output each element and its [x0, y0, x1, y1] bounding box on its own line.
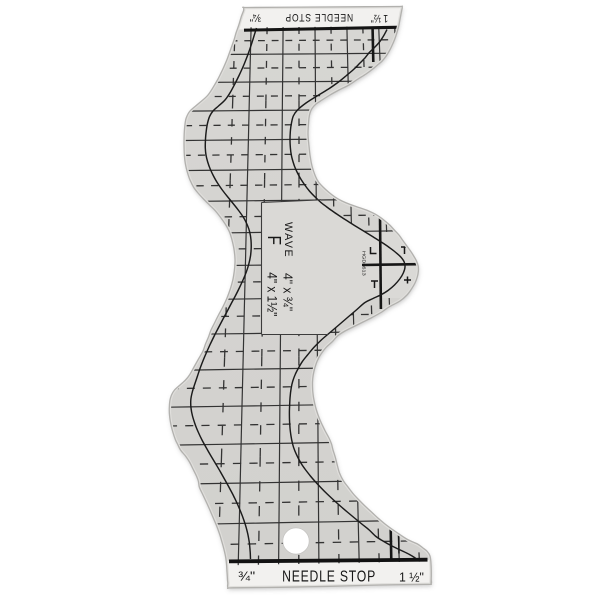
svg-text:NEEDLE STOP: NEEDLE STOP: [282, 568, 376, 585]
svg-text:¾": ¾": [250, 11, 262, 23]
svg-text:1 ½": 1 ½": [371, 12, 389, 24]
svg-text:F: F: [264, 236, 285, 246]
svg-text:4" x 1½": 4" x 1½": [265, 272, 281, 316]
svg-text:1 ½": 1 ½": [399, 569, 424, 584]
svg-text:NEEDLE STOP: NEEDLE STOP: [285, 11, 354, 23]
svg-text:HGD0613: HGD0613: [362, 251, 367, 276]
svg-text:4" x ¾": 4" x ¾": [281, 273, 296, 312]
svg-text:¾": ¾": [238, 569, 256, 584]
